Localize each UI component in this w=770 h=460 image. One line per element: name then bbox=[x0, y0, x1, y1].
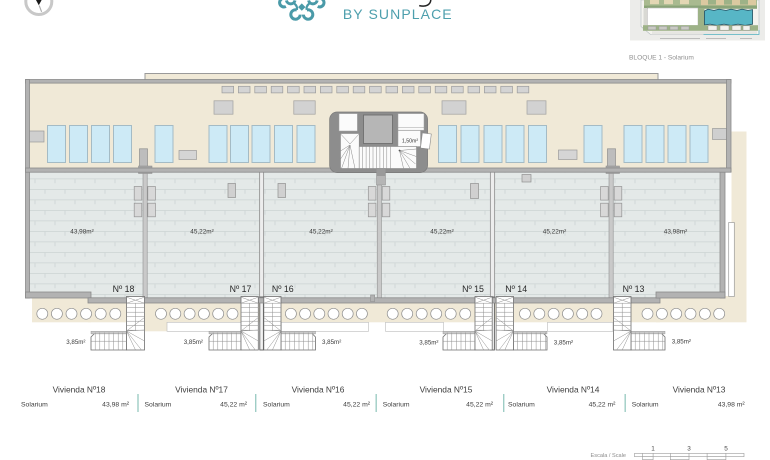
svg-text:Nº 13: Nº 13 bbox=[623, 284, 645, 294]
svg-text:43,98 m²: 43,98 m² bbox=[102, 402, 130, 409]
svg-text:Nº 15: Nº 15 bbox=[462, 284, 484, 294]
svg-text:Solarium: Solarium bbox=[383, 402, 410, 409]
svg-text:45,22m²: 45,22m² bbox=[190, 229, 213, 236]
svg-text:Vivienda Nº15: Vivienda Nº15 bbox=[420, 385, 473, 395]
svg-text:3,85m²: 3,85m² bbox=[672, 339, 691, 346]
svg-text:45,22 m²: 45,22 m² bbox=[220, 402, 248, 409]
svg-text:45,22m²: 45,22m² bbox=[309, 229, 332, 236]
svg-text:1: 1 bbox=[651, 446, 655, 453]
svg-text:43,98m²: 43,98m² bbox=[70, 229, 93, 236]
svg-text:Solarium: Solarium bbox=[632, 402, 659, 409]
svg-text:Solarium: Solarium bbox=[21, 402, 48, 409]
svg-text:43,98m²: 43,98m² bbox=[664, 229, 687, 236]
svg-text:3,85m²: 3,85m² bbox=[66, 339, 85, 346]
svg-text:3,85m²: 3,85m² bbox=[322, 339, 341, 346]
svg-text:45,22 m²: 45,22 m² bbox=[589, 402, 617, 409]
svg-text:45,22m²: 45,22m² bbox=[543, 229, 566, 236]
svg-text:BY SUNPLACE: BY SUNPLACE bbox=[343, 6, 453, 22]
svg-text:1,50m²: 1,50m² bbox=[402, 138, 418, 144]
svg-text:Nº 14: Nº 14 bbox=[505, 284, 527, 294]
svg-text:Nº 17: Nº 17 bbox=[230, 284, 252, 294]
svg-text:45,22m²: 45,22m² bbox=[430, 229, 453, 236]
svg-text:Solarium: Solarium bbox=[508, 402, 535, 409]
svg-text:45,22 m²: 45,22 m² bbox=[466, 402, 494, 409]
svg-text:Nº 16: Nº 16 bbox=[272, 284, 294, 294]
svg-text:45,22 m²: 45,22 m² bbox=[343, 402, 371, 409]
svg-text:Solarium: Solarium bbox=[263, 402, 290, 409]
svg-text:Vivienda Nº17: Vivienda Nº17 bbox=[175, 385, 228, 395]
svg-text:Nº 18: Nº 18 bbox=[113, 284, 135, 294]
svg-text:Vivienda Nº16: Vivienda Nº16 bbox=[292, 385, 345, 395]
svg-text:3,85m²: 3,85m² bbox=[419, 340, 438, 347]
svg-text:5: 5 bbox=[724, 446, 728, 453]
svg-text:Vivienda Nº14: Vivienda Nº14 bbox=[547, 385, 600, 395]
svg-text:BLOQUE 1 - Solarium: BLOQUE 1 - Solarium bbox=[629, 55, 694, 62]
svg-text:43,98 m²: 43,98 m² bbox=[718, 402, 746, 409]
svg-text:Solarium: Solarium bbox=[145, 402, 172, 409]
svg-text:3,85m²: 3,85m² bbox=[184, 339, 203, 346]
svg-text:Escala / Scale: Escala / Scale bbox=[591, 453, 626, 459]
svg-text:3: 3 bbox=[687, 446, 691, 453]
svg-text:Vivienda Nº18: Vivienda Nº18 bbox=[53, 385, 106, 395]
svg-text:3,85m²: 3,85m² bbox=[554, 340, 573, 347]
svg-text:Vivienda Nº13: Vivienda Nº13 bbox=[673, 385, 726, 395]
